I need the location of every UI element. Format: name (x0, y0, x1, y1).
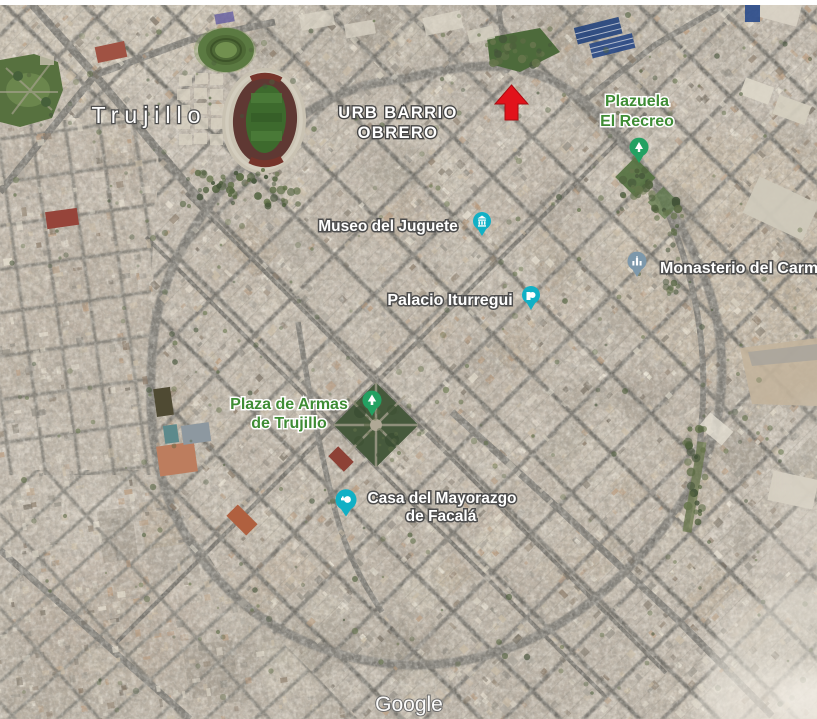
svg-text:Monasterio del Carmen: Monasterio del Carmen (660, 260, 817, 277)
svg-text:URB BARRIO: URB BARRIO (338, 104, 457, 122)
svg-text:Plazuela: Plazuela (605, 93, 669, 110)
svg-text:OBRERO: OBRERO (358, 124, 439, 142)
svg-text:de Trujillo: de Trujillo (251, 415, 327, 432)
svg-text:Google: Google (375, 693, 443, 716)
svg-text:Casa del Mayorazgo: Casa del Mayorazgo (367, 490, 516, 507)
svg-text:de Facalá: de Facalá (406, 508, 477, 525)
svg-text:Plaza de Armas: Plaza de Armas (230, 396, 348, 413)
svg-text:Trujillo: Trujillo (92, 102, 207, 128)
svg-text:El Recreo: El Recreo (600, 113, 674, 130)
svg-text:Palacio Iturregui: Palacio Iturregui (387, 292, 512, 309)
svg-text:Museo del Juguete: Museo del Juguete (318, 218, 458, 235)
